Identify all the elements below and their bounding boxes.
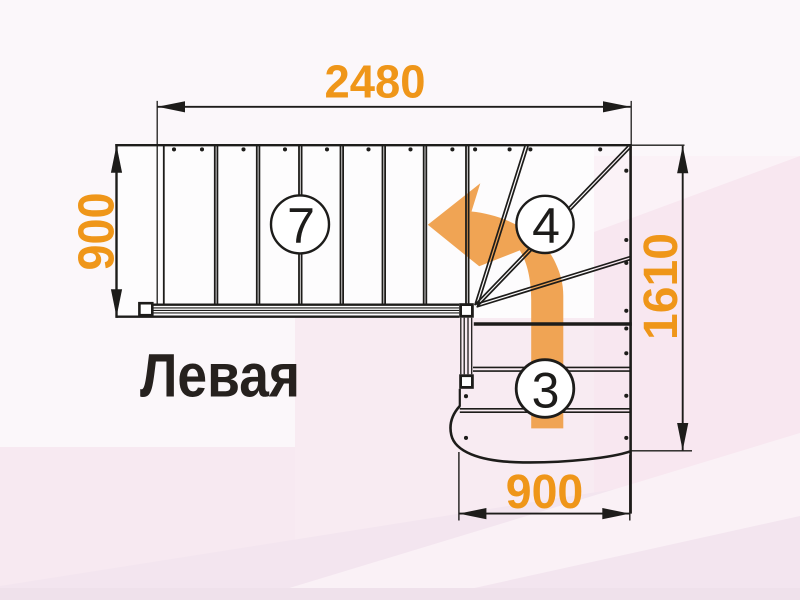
svg-text:900: 900	[506, 465, 584, 519]
svg-text:1610: 1610	[635, 233, 688, 340]
svg-text:2480: 2480	[325, 56, 426, 108]
svg-text:900: 900	[68, 193, 125, 271]
svg-text:3: 3	[532, 362, 560, 418]
svg-text:7: 7	[287, 198, 315, 254]
svg-text:Левая: Левая	[140, 342, 300, 410]
svg-text:4: 4	[532, 198, 560, 254]
